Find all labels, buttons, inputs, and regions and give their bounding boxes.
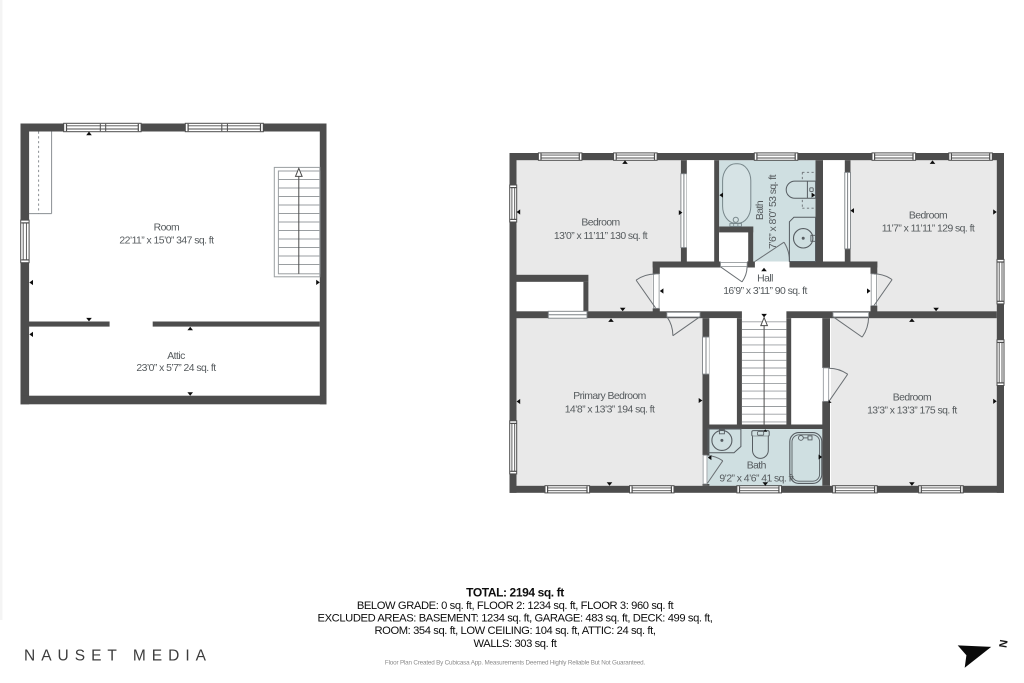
- svg-text:7’6” x 8’0” 53 sq. ft: 7’6” x 8’0” 53 sq. ft: [768, 174, 779, 249]
- svg-text:23’0” x 5’7” 24 sq. ft: 23’0” x 5’7” 24 sq. ft: [136, 363, 216, 374]
- svg-text:Bedroom: Bedroom: [909, 211, 947, 222]
- svg-text:EXCLUDED AREAS: BASEMENT: 1234: EXCLUDED AREAS: BASEMENT: 1234 sq. ft, G…: [318, 613, 713, 625]
- svg-text:Attic: Attic: [167, 351, 185, 362]
- svg-text:TOTAL: 2194 sq. ft: TOTAL: 2194 sq. ft: [466, 585, 564, 599]
- svg-text:Primary Bedroom: Primary Bedroom: [573, 391, 646, 402]
- svg-text:Floor Plan Created By Cubicasa: Floor Plan Created By Cubicasa App. Meas…: [385, 660, 646, 667]
- svg-text:16’9” x 3’11” 90 sq. ft: 16’9” x 3’11” 90 sq. ft: [723, 286, 807, 297]
- svg-text:14’8” x 13’3” 194 sq. ft: 14’8” x 13’3” 194 sq. ft: [565, 404, 655, 415]
- svg-text:22’11” x 15’0” 347 sq. ft: 22’11” x 15’0” 347 sq. ft: [119, 236, 214, 247]
- svg-text:ROOM: 354 sq. ft, LOW CEILING:: ROOM: 354 sq. ft, LOW CEILING: 104 sq. f…: [374, 625, 655, 637]
- svg-text:Bedroom: Bedroom: [893, 392, 931, 403]
- svg-text:11’7” x 11’11” 129 sq. ft: 11’7” x 11’11” 129 sq. ft: [882, 223, 975, 234]
- svg-text:Room: Room: [154, 222, 180, 233]
- svg-text:Hall: Hall: [757, 274, 773, 285]
- svg-text:Bath: Bath: [747, 461, 767, 472]
- svg-text:13’0” x 11’11” 130 sq. ft: 13’0” x 11’11” 130 sq. ft: [554, 231, 648, 242]
- svg-text:9’2” x 4’6” 41 sq. ft: 9’2” x 4’6” 41 sq. ft: [719, 473, 794, 484]
- svg-text:Bath: Bath: [755, 200, 766, 220]
- svg-text:WALLS: 303 sq. ft: WALLS: 303 sq. ft: [474, 638, 558, 650]
- svg-text:NAUSET MEDIA: NAUSET MEDIA: [24, 648, 212, 665]
- svg-text:13’3” x 13’3” 175 sq. ft: 13’3” x 13’3” 175 sq. ft: [867, 405, 957, 416]
- svg-text:Bedroom: Bedroom: [581, 218, 619, 229]
- svg-text:BELOW GRADE: 0 sq. ft, FLOOR 2: BELOW GRADE: 0 sq. ft, FLOOR 2: 1234 sq.…: [357, 600, 675, 612]
